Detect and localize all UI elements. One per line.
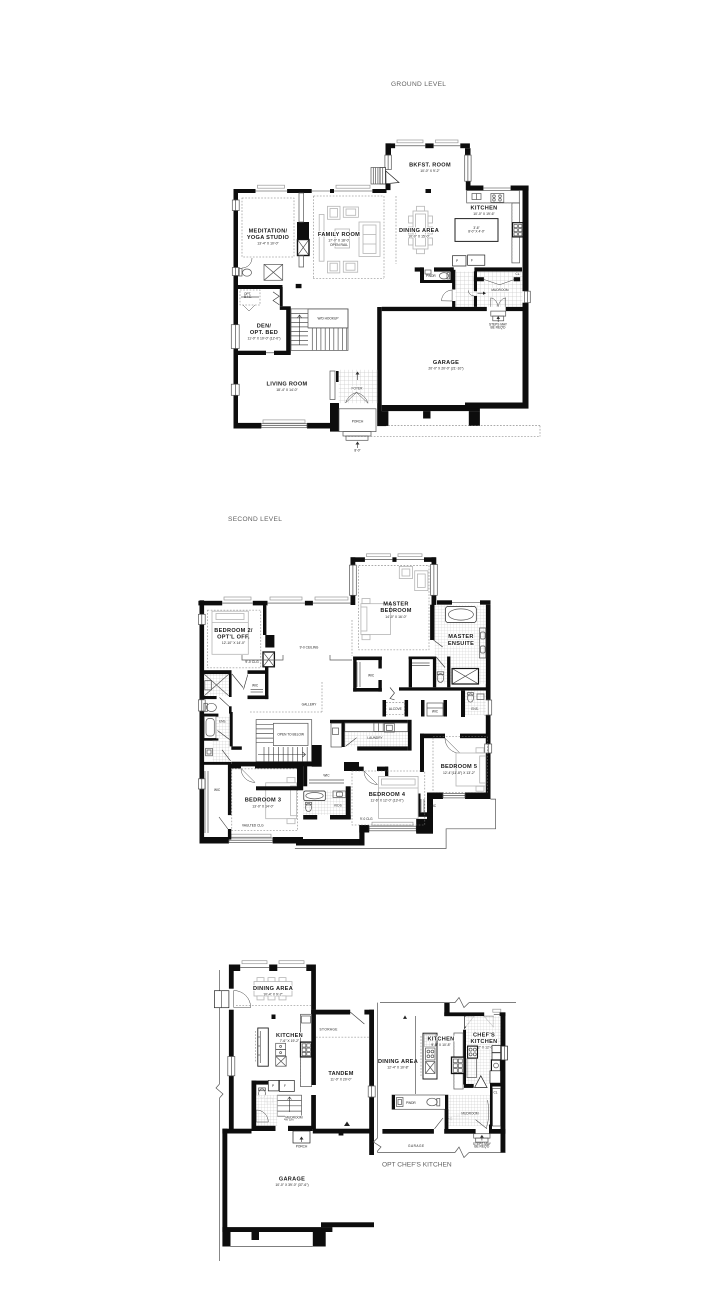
svg-text:13'-0" X 14'-0": 13'-0" X 14'-0" (252, 804, 274, 808)
svg-text:10'-0" X 39'-0" (37'-6"): 10'-0" X 39'-0" (37'-6") (275, 1183, 308, 1187)
svg-text:WIC: WIC (430, 804, 437, 808)
svg-text:KITCHEN: KITCHEN (471, 206, 498, 212)
svg-text:OPT'L OFF.: OPT'L OFF. (217, 635, 250, 641)
svg-text:GALLERY: GALLERY (302, 703, 318, 707)
svg-text:ALCOVE: ALCOVE (389, 707, 402, 711)
svg-text:8'-0": 8'-0" (354, 449, 360, 453)
svg-text:MUDROOM: MUDROOM (461, 1112, 479, 1116)
svg-text:P: P (272, 1084, 274, 1088)
svg-text:BEDROOM 3: BEDROOM 3 (245, 798, 282, 804)
svg-text:OPEN TO BELOW: OPEN TO BELOW (277, 733, 304, 737)
svg-text:VAULTED CLG: VAULTED CLG (242, 824, 264, 828)
svg-text:TANDEM: TANDEM (328, 1071, 353, 1077)
svg-text:CL.: CL. (516, 272, 521, 276)
svg-text:18'-4" X 14'-0": 18'-4" X 14'-0" (276, 388, 298, 392)
svg-text:8'-0" X 4'-0": 8'-0" X 4'-0" (468, 230, 485, 234)
svg-text:GARAGE: GARAGE (408, 1144, 425, 1148)
svg-text:WIC: WIC (323, 774, 330, 778)
svg-text:WIC: WIC (252, 684, 259, 688)
svg-text:DEN/: DEN/ (257, 324, 272, 330)
svg-text:MEDITATION/: MEDITATION/ (249, 229, 288, 235)
svg-text:10'-4" X 9'-2": 10'-4" X 9'-2" (263, 993, 283, 997)
svg-text:ENS.: ENS. (219, 720, 227, 724)
svg-text:11'-0" X 20'-0": 11'-0" X 20'-0" (330, 1078, 352, 1082)
svg-text:BKFST. ROOM: BKFST. ROOM (409, 163, 451, 169)
svg-text:OPT. BED: OPT. BED (250, 330, 278, 336)
svg-text:ENS.: ENS. (471, 707, 479, 711)
svg-text:BEDROOM: BEDROOM (380, 608, 411, 614)
svg-text:B.I.C.: B.I.C. (244, 295, 252, 299)
svg-text:F: F (471, 259, 473, 263)
svg-text:10'-0" X 19'-6": 10'-0" X 19'-6" (473, 212, 495, 216)
svg-text:FAMILY ROOM: FAMILY ROOM (318, 232, 360, 238)
svg-text:DINING AREA: DINING AREA (378, 1059, 418, 1065)
svg-text:DINING AREA: DINING AREA (399, 228, 439, 234)
svg-text:SECOND LEVEL: SECOND LEVEL (228, 516, 282, 523)
svg-text:11'-6" X 12'-0" (13'-0"): 11'-6" X 12'-0" (13'-0") (370, 799, 403, 803)
svg-text:GARAGE: GARAGE (433, 360, 459, 366)
svg-text:12'-10" X 14'-0": 12'-10" X 14'-0" (222, 641, 246, 645)
svg-text:W/D HOOKUP: W/D HOOKUP (318, 317, 339, 321)
svg-text:OPT CHEF'S KITCHEN: OPT CHEF'S KITCHEN (382, 1162, 452, 1169)
svg-text:KITCHEN: KITCHEN (276, 1033, 303, 1039)
svg-text:BEDROOM 2/: BEDROOM 2/ (214, 628, 253, 634)
svg-text:STORAGE: STORAGE (320, 1028, 338, 1032)
svg-text:WIC: WIC (214, 788, 221, 792)
svg-text:ENSUITE: ENSUITE (448, 641, 474, 647)
svg-text:WIC: WIC (432, 710, 439, 714)
svg-text:MUDROOM: MUDROOM (285, 1116, 303, 1120)
svg-text:DINING AREA: DINING AREA (253, 986, 293, 992)
svg-text:PWDR: PWDR (406, 1101, 416, 1105)
svg-text:9'-0 CLG: 9'-0 CLG (360, 817, 373, 821)
svg-text:12'-4"(11'-8") X 13'-2": 12'-4"(11'-8") X 13'-2" (443, 771, 476, 775)
svg-text:GARAGE: GARAGE (279, 1177, 305, 1183)
svg-text:10'-0" X 15'-0": 10'-0" X 15'-0" (408, 235, 430, 239)
svg-text:P: P (456, 259, 458, 263)
svg-text:13'-4" X 10'-0": 13'-4" X 10'-0" (257, 242, 279, 246)
svg-text:KITCHEN: KITCHEN (428, 1037, 455, 1043)
svg-text:12'-4" X 10'-8": 12'-4" X 10'-8" (387, 1066, 409, 1070)
svg-text:BEDROOM 5: BEDROOM 5 (441, 764, 478, 770)
svg-text:PORCH: PORCH (296, 1145, 308, 1149)
svg-text:BEDROOM 4: BEDROOM 4 (369, 792, 406, 798)
svg-text:FOYER: FOYER (352, 387, 364, 391)
svg-text:9'-0 CEILING: 9'-0 CEILING (300, 646, 319, 650)
svg-text:CHEF'S: CHEF'S (473, 1033, 495, 1039)
svg-text:KIDS: KIDS (334, 804, 341, 808)
svg-text:BE REQ'D: BE REQ'D (491, 325, 507, 329)
svg-text:BE REQ'D: BE REQ'D (474, 1145, 490, 1149)
svg-text:9'-8" X 10'-8": 9'-8" X 10'-8" (431, 1043, 451, 1047)
svg-text:F: F (284, 1084, 286, 1088)
svg-text:WIC: WIC (368, 674, 375, 678)
svg-text:10'-0" X 9'-2": 10'-0" X 9'-2" (420, 169, 440, 173)
svg-text:PWDR: PWDR (426, 274, 436, 278)
svg-text:YOGA STUDIO: YOGA STUDIO (247, 235, 290, 241)
svg-text:14'-0" X 16'-0": 14'-0" X 16'-0" (385, 615, 407, 619)
svg-text:MASTER: MASTER (448, 634, 473, 640)
svg-text:20'-0" X 20'-0" (21'-10"): 20'-0" X 20'-0" (21'-10") (428, 367, 463, 371)
svg-text:7'-6" X 19'-2": 7'-6" X 19'-2" (280, 1039, 300, 1043)
svg-text:LIVING ROOM: LIVING ROOM (267, 382, 308, 388)
svg-text:PORCH: PORCH (352, 420, 364, 424)
svg-text:MASTER: MASTER (383, 602, 408, 608)
svg-text:GROUND LEVEL: GROUND LEVEL (391, 81, 446, 88)
svg-text:CL: CL (494, 1091, 498, 1095)
svg-text:MUDROOM: MUDROOM (491, 288, 509, 292)
svg-text:KITCHEN: KITCHEN (471, 1039, 498, 1045)
svg-text:9'-0 CLG: 9'-0 CLG (245, 660, 259, 664)
svg-text:OPEN RAIL: OPEN RAIL (330, 243, 348, 247)
svg-text:11'-0" X 10'-0" (12'-0"): 11'-0" X 10'-0" (12'-0") (247, 337, 280, 341)
svg-text:LAUNDRY: LAUNDRY (367, 736, 383, 740)
